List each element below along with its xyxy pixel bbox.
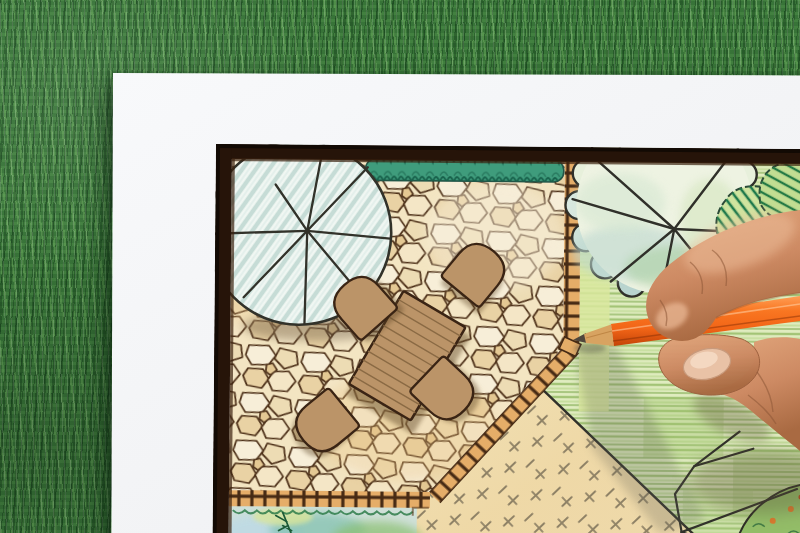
photo-canvas [0, 0, 800, 533]
plan-drawing [212, 144, 800, 533]
landscape-plan-svg [212, 144, 800, 533]
planting-bed [218, 505, 423, 533]
brick-path-bottom [229, 490, 430, 508]
